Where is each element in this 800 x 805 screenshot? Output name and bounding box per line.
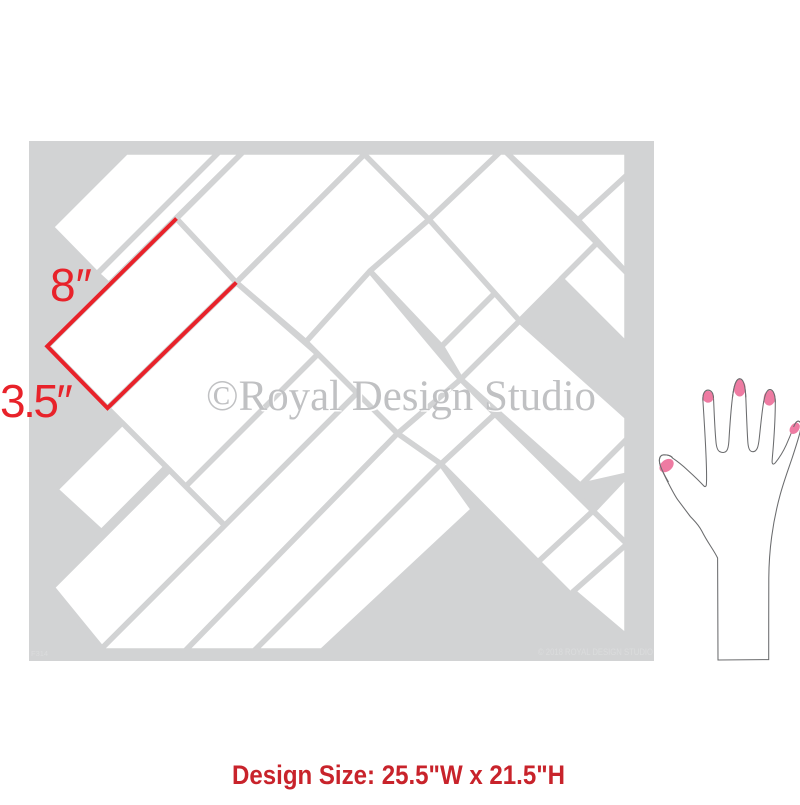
svg-text:© 2018 ROYAL DESIGN STUDIO: © 2018 ROYAL DESIGN STUDIO	[538, 647, 653, 657]
svg-text:©Royal Design Studio: ©Royal Design Studio	[206, 373, 596, 420]
svg-text:8″: 8″	[50, 259, 92, 311]
svg-text:Design Size: 25.5"W x 21.5"H: Design Size: 25.5"W x 21.5"H	[232, 760, 565, 790]
svg-text:3.5″: 3.5″	[0, 375, 72, 427]
svg-text:F314: F314	[31, 649, 48, 658]
